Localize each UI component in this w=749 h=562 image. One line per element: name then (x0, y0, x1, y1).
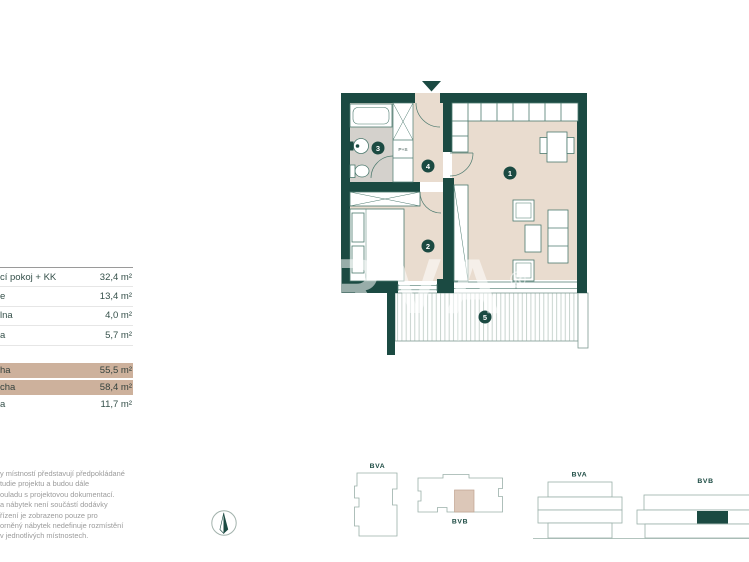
chair (540, 138, 547, 154)
floor-plan: P+S (336, 70, 604, 362)
pillow (352, 246, 364, 273)
room-area-value: 11,7 m² (100, 399, 133, 410)
table-row-highlight: ha 55,5 m² (0, 363, 133, 378)
table-row: cí pokoj + KK 32,4 m² (0, 268, 133, 287)
disclaimer-line: orněný nábytek nedefinuje rozmístění (0, 521, 170, 531)
summary-label: ha (0, 365, 11, 376)
chair (567, 138, 574, 154)
washer-dryer-label: P+S (398, 147, 407, 153)
sofa (548, 210, 568, 263)
elevation-b-label: BVB (697, 478, 713, 485)
elevation-a-label: BVA (572, 472, 588, 479)
room-label: a (0, 330, 5, 341)
building-elevation-b (637, 495, 749, 538)
table-row: e 13,4 m² (0, 287, 133, 306)
plate-a-label: BVA (370, 463, 386, 470)
room-number-living: 1 (508, 169, 512, 178)
room-label: e (0, 291, 5, 302)
toilet (355, 165, 369, 177)
unit-floor-highlight (697, 511, 728, 524)
summary-label: cha (0, 382, 15, 393)
disclaimer-line: v jednotlivých místnostech. (0, 531, 170, 541)
disclaimer-line: y místností představují předpokládané (0, 469, 170, 479)
disclaimer-line: a nábytek není součástí dodávky (0, 500, 170, 510)
unit-location-highlight (455, 490, 475, 512)
plate-b-label: BVB (452, 519, 468, 526)
room-number-terrace: 5 (483, 313, 487, 322)
table-row: a 11,7 m² (0, 397, 133, 413)
table-row: a 5,7 m² (0, 326, 133, 345)
summary-area-value: 55,5 m² (100, 365, 133, 376)
building-plate-a (355, 473, 398, 536)
windows (398, 282, 577, 291)
disclaimer-line: ouladu s projektovou dokumentací. (0, 490, 170, 500)
room-area-value: 32,4 m² (100, 272, 133, 283)
room-area-value: 13,4 m² (100, 291, 133, 302)
pillow (352, 213, 364, 242)
area-table: cí pokoj + KK 32,4 m² e 13,4 m² lna 4,0 … (0, 267, 133, 413)
terrace (395, 293, 588, 348)
table-gap (0, 346, 133, 363)
entrance-arrow-icon (422, 81, 441, 92)
room-label: a (0, 399, 5, 410)
disclaimer-line: tudie projektu a budou dále (0, 479, 170, 489)
table-row-highlight: cha 58,4 m² (0, 380, 133, 395)
room-area-value: 5,7 m² (105, 330, 133, 341)
dining-table (547, 132, 567, 162)
disclaimer-text: y místností představují předpokládané tu… (0, 469, 170, 542)
hall-closet (393, 103, 413, 182)
room-number-bedroom: 2 (426, 242, 430, 251)
coffee-table (525, 225, 541, 252)
disclaimer-line: řízení je zobrazeno pouze pro (0, 511, 170, 521)
building-elevation-a (538, 482, 622, 538)
room-label: lna (0, 310, 13, 321)
table-row: lna 4,0 m² (0, 307, 133, 326)
room-label: cí pokoj + KK (0, 272, 56, 283)
room-area-value: 4,0 m² (105, 310, 133, 321)
room-number-bathroom: 3 (376, 144, 380, 153)
summary-area-value: 58,4 m² (100, 382, 133, 393)
building-locators: BVA BVB BVA BVB (340, 455, 749, 547)
compass-north-icon (210, 509, 238, 537)
